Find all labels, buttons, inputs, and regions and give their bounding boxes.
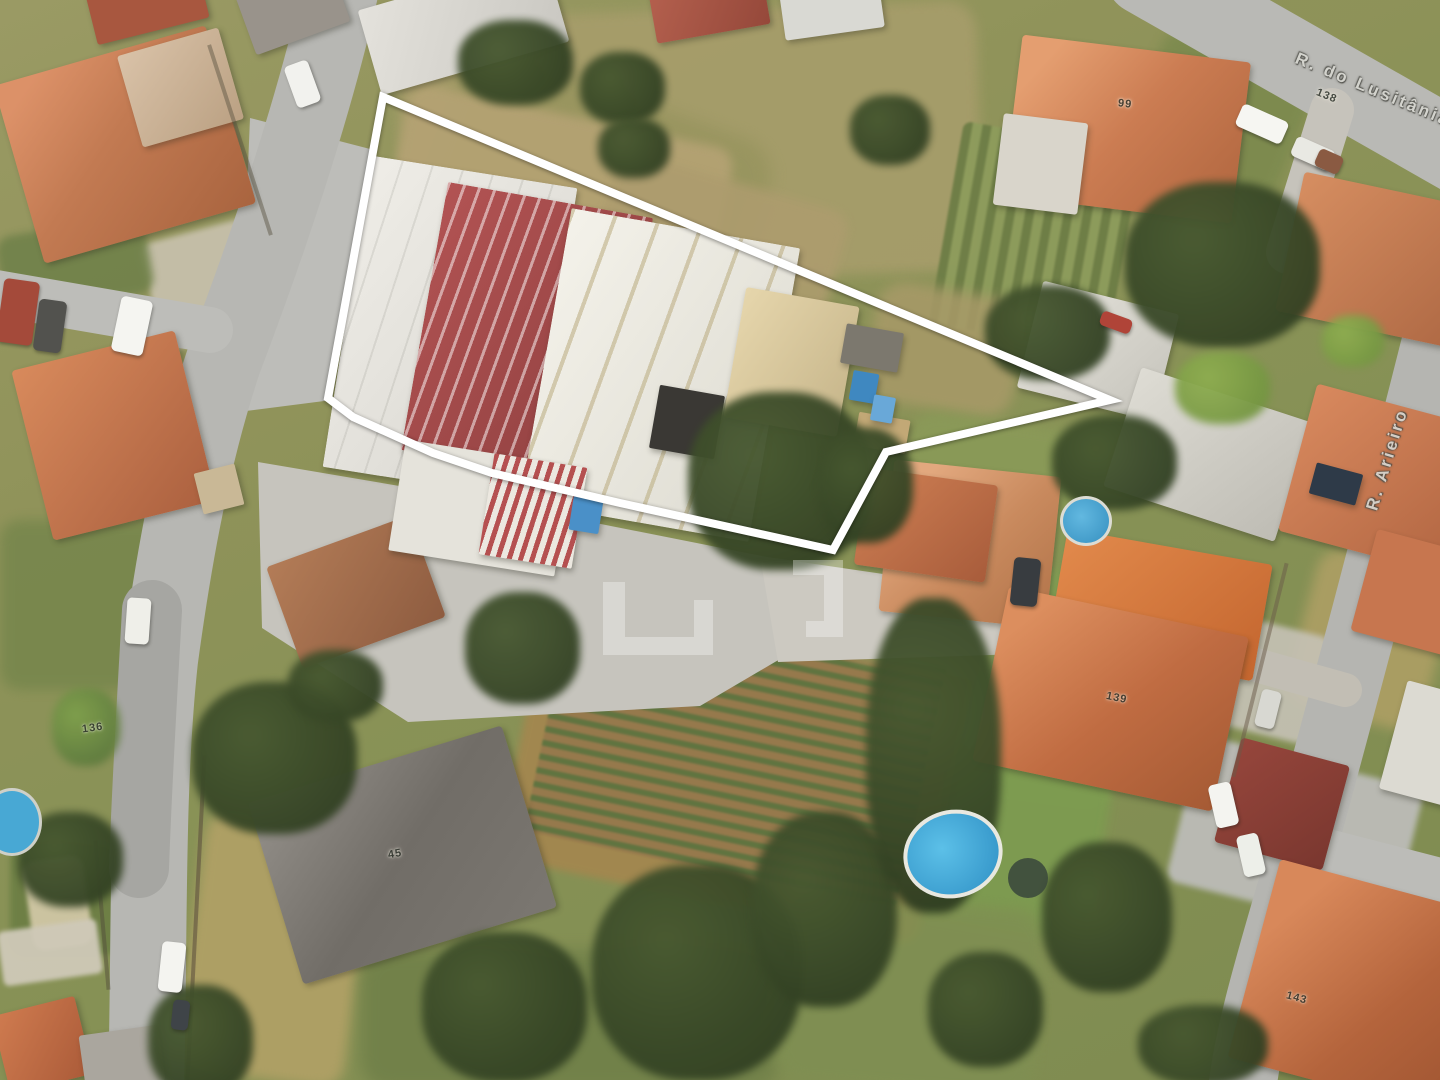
house-number: 45 — [387, 847, 403, 861]
property-boundary-outline — [328, 97, 1110, 550]
satellite-aerial-view: R. do LusitâniaR. Arieiro991381391434513… — [0, 0, 1440, 1080]
property-outline-layer — [0, 0, 1440, 1080]
house-number: 99 — [1117, 97, 1133, 111]
